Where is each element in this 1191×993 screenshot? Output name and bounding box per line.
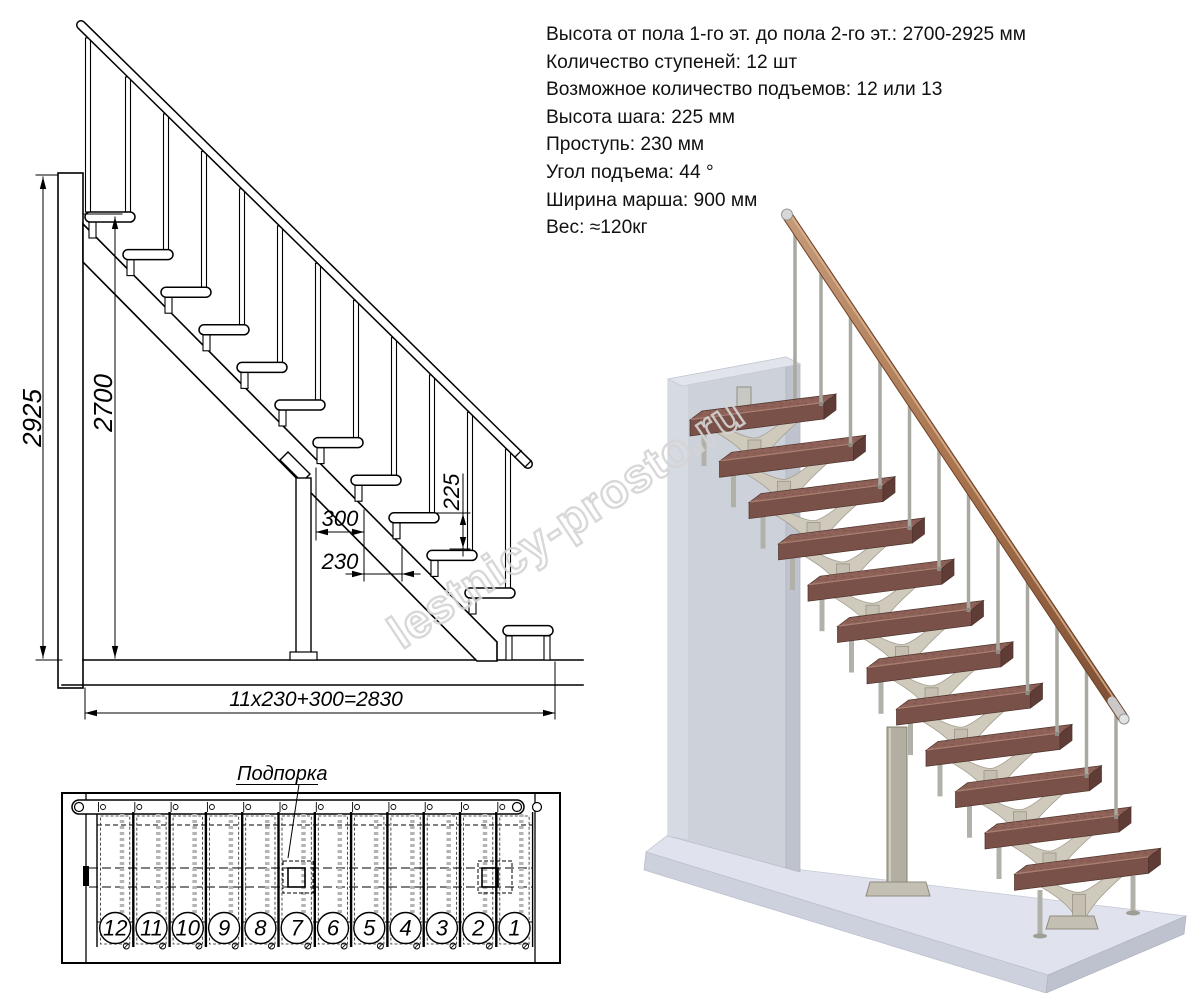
plan-view-drawing: 12 11 10 9 8 7 6 5 4 3 2 <box>62 763 560 963</box>
plan-handrail <box>72 800 542 814</box>
step-number: 8 <box>254 916 267 941</box>
support-label: Подпорка <box>237 763 328 785</box>
dim-floor-height: 2700 <box>88 374 118 433</box>
spec-line-step-count: Количество ступеней: 12 шт <box>546 49 1026 77</box>
spec-line-tread-depth: Проступь: 230 мм <box>546 131 1026 159</box>
wall-section <box>58 173 83 688</box>
step-number: 9 <box>218 916 230 941</box>
render-3d-view <box>644 209 1186 993</box>
step-number: 5 <box>363 916 376 941</box>
spec-text-block: Высота от пола 1-го эт. до пола 2-го эт.… <box>546 21 1026 242</box>
stair-drawing-page: Высота от пола 1-го эт. до пола 2-го эт.… <box>0 0 1191 993</box>
step-number: 6 <box>327 916 340 941</box>
dim-tread-run: 230 <box>321 549 359 574</box>
step-number: 11 <box>140 916 163 941</box>
side-elevation-drawing: 2925 2700 225 300 230 11x230+300=2830 <box>17 25 583 719</box>
step-number: 10 <box>176 916 201 941</box>
spec-line-weight: Вес: ≈120кг <box>546 214 1026 242</box>
step-number: 4 <box>399 916 411 941</box>
step-number: 2 <box>471 916 484 941</box>
spec-line-step-height: Высота шага: 225 мм <box>546 104 1026 132</box>
dim-bottom-module: 300 <box>322 506 359 531</box>
plan-wall-block <box>83 866 89 886</box>
dim-riser: 225 <box>439 473 464 511</box>
spec-line-height-range: Высота от пола 1-го эт. до пола 2-го эт.… <box>546 21 1026 49</box>
dim-total-run: 11x230+300=2830 <box>229 688 403 711</box>
step-number: 7 <box>291 916 304 941</box>
spec-line-angle: Угол подъема: 44 ° <box>546 159 1026 187</box>
spec-line-rise-count: Возможное количество подъемов: 12 или 13 <box>546 76 1026 104</box>
handrail-3d <box>782 209 1130 724</box>
support-post-side <box>280 452 317 660</box>
step-number: 3 <box>436 916 449 941</box>
dim-total-height: 2925 <box>17 389 47 448</box>
step-number: 12 <box>103 916 127 941</box>
central-post-3d <box>866 727 930 896</box>
spec-line-width: Ширина марша: 900 мм <box>546 187 1026 215</box>
step-number: 1 <box>508 916 520 941</box>
